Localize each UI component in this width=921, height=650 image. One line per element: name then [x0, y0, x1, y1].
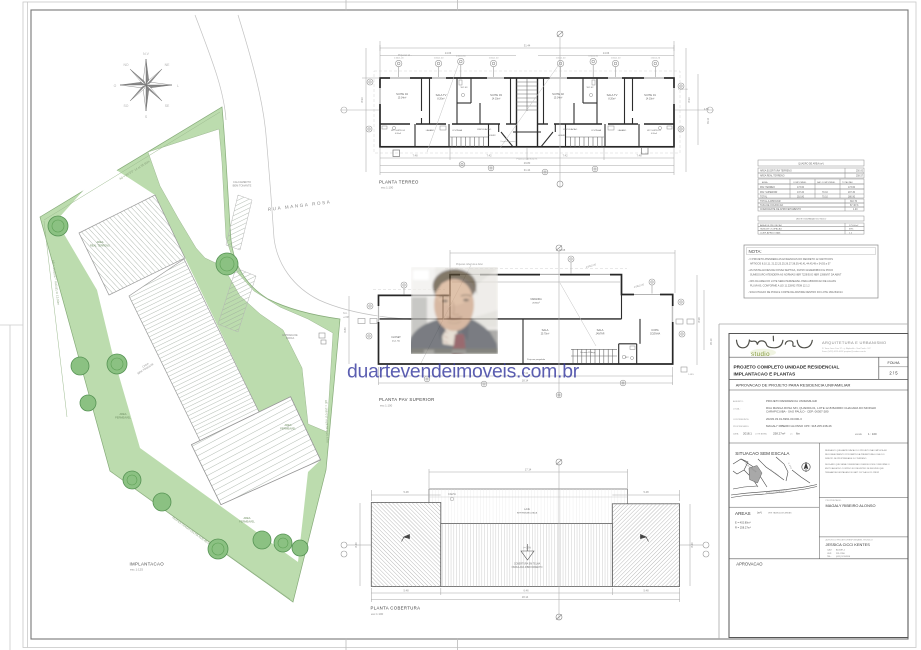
svg-text:CONTRIBUINTE:: CONTRIBUINTE: — [733, 419, 750, 421]
svg-text:28.86m²: 28.86m² — [532, 302, 540, 305]
svg-text:35.10: 35.10 — [709, 338, 713, 345]
svg-text:TEL:: TEL: — [827, 556, 832, 558]
svg-text:studio: studio — [751, 351, 770, 358]
svg-text:FOLHA: FOLHA — [888, 361, 901, 365]
svg-text:8.93: 8.93 — [360, 97, 364, 103]
svg-text:PLANTA TERREO: PLANTA TERREO — [379, 180, 419, 185]
svg-text:TOTAL/PAV.: TOTAL/PAV. — [842, 181, 853, 184]
svg-text:+2.88: +2.88 — [343, 317, 350, 319]
svg-text:69%: 69% — [849, 229, 853, 231]
svg-text:LAVABO: LAVABO — [426, 129, 435, 132]
svg-text:6.46: 6.46 — [523, 589, 529, 593]
svg-text:TOTAL A APROVAR: TOTAL A APROVAR — [760, 200, 781, 203]
svg-text:AREA: AREA — [243, 516, 250, 520]
svg-text:14.06: 14.06 — [603, 51, 610, 55]
svg-text:AUTOR DO PROJETO/RESPONSAVEL T: AUTOR DO PROJETO/RESPONSAVEL TECNICO: — [826, 538, 874, 541]
svg-text:7.48: 7.48 — [412, 154, 418, 158]
svg-text:JANTAR: JANTAR — [596, 333, 605, 336]
svg-text:PROJETO COMPLETO UNIDADE RESID: PROJETO COMPLETO UNIDADE RESIDENCIAL — [734, 365, 840, 370]
svg-text:FORCA: FORCA — [286, 337, 295, 340]
svg-text:AREA: AREA — [284, 423, 291, 427]
svg-text:IMPERMEABILIZADA: IMPERMEABILIZADA — [517, 511, 538, 514]
svg-text:Degrau maximo: Degrau maximo — [501, 140, 517, 143]
svg-text:RECONHECIMENTO POR PARTE DA PR: RECONHECIMENTO POR PARTE DA PREFEITURA L… — [825, 453, 885, 456]
svg-text:ASSUNTO:: ASSUNTO: — [733, 400, 744, 403]
svg-text:IMPLANTACAO E PLANTAS: IMPLANTACAO E PLANTAS — [734, 372, 796, 377]
svg-text:AREA REAL TERRENO: AREA REAL TERRENO — [760, 175, 785, 178]
svg-text:AREA ESCRITURA TERRENO: AREA ESCRITURA TERRENO — [760, 170, 792, 173]
svg-text:esc 1:100: esc 1:100 — [371, 612, 384, 616]
svg-text:0.60x0.60: 0.60x0.60 — [456, 56, 466, 58]
svg-text:COEFICIENTE DE APROVEITAMENTO: COEFICIENTE DE APROVEITAMENTO — [760, 208, 801, 211]
svg-text:SUITE 01: SUITE 01 — [644, 93, 656, 97]
svg-text:137.20: 137.20 — [797, 192, 805, 194]
svg-text:USO E OCUPACAO DO SOLO: USO E OCUPACAO DO SOLO — [796, 218, 827, 221]
svg-text:29.80: 29.80 — [524, 161, 531, 165]
svg-text:6m: 6m — [796, 432, 801, 436]
svg-text:DIREITO DE PROPRIEDADE DO TERR: DIREITO DE PROPRIEDADE DO TERRENO — [825, 457, 867, 460]
svg-text:E = 402.80m²: E = 402.80m² — [735, 521, 751, 525]
svg-text:NOTA:: NOTA: — [749, 249, 762, 254]
svg-text:70.10: 70.10 — [822, 196, 828, 198]
svg-text:LAJE: LAJE — [524, 508, 530, 511]
svg-text:COBERTURA EM TELHA: COBERTURA EM TELHA — [514, 563, 541, 566]
svg-text:5.48: 5.48 — [403, 589, 409, 593]
svg-text:COEF. APROV. MAX: COEF. APROV. MAX — [760, 231, 781, 234]
svg-text:AREAS: AREAS — [735, 511, 751, 516]
svg-text:1.20: 1.20 — [853, 209, 858, 211]
svg-text:PLANTA COBERTURA: PLANTA COBERTURA — [371, 606, 421, 611]
svg-text:PERMEAVEL: PERMEAVEL — [115, 416, 131, 420]
svg-text:(m²): (m²) — [757, 511, 762, 515]
svg-text:DATA:: DATA: — [733, 433, 739, 436]
svg-text:SUMIDOURO ATENDERA AS NORMAS N: SUMIDOURO ATENDERA AS NORMAS NBR 7229/93… — [750, 274, 842, 277]
svg-text:18.14: 18.14 — [522, 595, 529, 599]
svg-text:4.50: 4.50 — [704, 108, 709, 111]
svg-text:VER TABELA DE AREAS: VER TABELA DE AREAS — [768, 512, 792, 515]
svg-text:TOTAL: TOTAL — [760, 195, 768, 198]
svg-text:173.60: 173.60 — [797, 187, 805, 189]
svg-text:AREA: AREA — [96, 240, 103, 244]
svg-text:173.60m²: 173.60m² — [849, 224, 859, 227]
svg-text:2018.1: 2018.1 — [743, 432, 752, 436]
svg-text:N.V: N.V — [143, 52, 149, 56]
svg-text:Escada 19 degr.: Escada 19 degr. — [580, 351, 595, 354]
svg-text:31.44: 31.44 — [524, 168, 531, 172]
svg-text:esc 1:100: esc 1:100 — [380, 404, 393, 408]
svg-text:COMPUTAVEL: COMPUTAVEL — [793, 181, 807, 184]
svg-text:SALA: SALA — [542, 328, 549, 332]
svg-text:SUITE 03: SUITE 03 — [490, 93, 502, 97]
svg-text:SITUACAO SEM ESCALA: SITUACAO SEM ESCALA — [735, 451, 790, 456]
svg-text:COZINHA: COZINHA — [452, 129, 462, 132]
svg-text:PROPRIETARIO:: PROPRIETARIO: — [733, 425, 750, 428]
svg-text:O: O — [114, 84, 117, 88]
svg-text:APROVACAO DE PROJETO PARA RES: APROVACAO DE PROJETO PARA RESIDENCIA UNI… — [736, 382, 851, 387]
svg-text:L: L — [177, 84, 179, 88]
svg-text:PLANTA PAV SUPERIOR: PLANTA PAV SUPERIOR — [379, 397, 435, 402]
svg-text:- O PROJETO ATENDERA AS EXIGEN: - O PROJETO ATENDERA AS EXIGENCIAS DO DE… — [748, 258, 833, 261]
svg-text:S: S — [145, 115, 148, 119]
svg-text:PLUVIAIS, CONFORME A LEI 11.22: PLUVIAIS, CONFORME A LEI 11.228/92 ITEM … — [750, 285, 810, 288]
svg-text:1.60x1.20: 1.60x1.20 — [489, 58, 499, 60]
svg-text:R. IPES: R. IPES — [787, 463, 792, 471]
svg-text:1 : 100: 1 : 100 — [868, 432, 877, 436]
svg-text:esc 1:125: esc 1:125 — [130, 568, 143, 572]
svg-text:APROVACAO: APROVACAO — [736, 562, 763, 567]
svg-text:WC 03: WC 03 — [461, 87, 468, 89]
svg-text:67.46 %: 67.46 % — [850, 205, 858, 207]
svg-text:14.33m²: 14.33m² — [646, 98, 655, 101]
svg-text:ONDULADA FIBROCIMENTO: ONDULADA FIBROCIMENTO — [512, 566, 543, 569]
svg-text:17.14: 17.14 — [525, 468, 532, 472]
svg-text:Projecao cobertura a fazer: Projecao cobertura a fazer — [456, 263, 483, 266]
svg-text:- SOLICITACAO DE PODA E CORTE: - SOLICITACAO DE PODA E CORTE DE ARVORE … — [748, 291, 843, 294]
svg-text:20233.33.01-6991.00.000-3: 20233.33.01-6991.00.000-3 — [766, 417, 802, 421]
svg-text:WC SUITE 01: WC SUITE 01 — [647, 130, 662, 132]
svg-text:25.70m²: 25.70m² — [541, 333, 550, 336]
svg-text:COZINHA: COZINHA — [591, 129, 601, 132]
svg-text:ARQUITETURA E URBANISMO: ARQUITETURA E URBANISMO — [822, 340, 886, 345]
svg-text:QUADRO DE AREA (m²): QUADRO DE AREA (m²) — [798, 162, 824, 165]
svg-text:COPA: COPA — [651, 328, 659, 332]
svg-text:JESSICA CICCI KENTES: JESSICA CICCI KENTES — [826, 542, 871, 547]
svg-text:15.34m²: 15.34m² — [398, 97, 407, 100]
svg-text:R. Tome Joao Cruz 37 - cj. Alp: R. Tome Joao Cruz 37 - cj. Alphaville - … — [822, 347, 871, 350]
svg-text:231-7890: 231-7890 — [836, 553, 846, 555]
svg-text:un:: un: — [790, 434, 793, 436]
svg-text:NO: NO — [123, 63, 128, 67]
svg-text:A51087-1: A51087-1 — [836, 549, 846, 552]
svg-text:4.20m²: 4.20m² — [395, 132, 402, 135]
svg-text:LOTE AREA:: LOTE AREA: — [755, 433, 768, 436]
svg-text:310.70: 310.70 — [850, 201, 858, 203]
svg-text:6.80: 6.80 — [343, 327, 347, 333]
svg-text:11.08: 11.08 — [559, 248, 566, 252]
svg-text:TENHAM SE DESTACADO NO ART. 24: TENHAM SE DESTACADO NO ART. 247 DA LEI 1… — [825, 471, 880, 474]
svg-text:WC 02: WC 02 — [587, 87, 594, 89]
svg-text:173.60: 173.60 — [848, 187, 856, 189]
svg-text:TAXA DE OCUPACAO: TAXA DE OCUPACAO — [760, 228, 782, 231]
svg-text:esc 1:100: esc 1:100 — [381, 186, 394, 190]
svg-text:207.30: 207.30 — [848, 192, 856, 194]
svg-text:A.SERV: A.SERV — [558, 134, 566, 137]
svg-text:PAV. TERREO: PAV. TERREO — [760, 186, 775, 189]
svg-text:duartevendeimoveis.com.br: duartevendeimoveis.com.br — [347, 361, 580, 383]
svg-text:31.44: 31.44 — [524, 44, 531, 48]
svg-text:REAL TERRENO: REAL TERRENO — [90, 244, 110, 248]
svg-text:CALHA: CALHA — [448, 493, 456, 496]
svg-text:ARTIGOS 8,10,11, 21,22,23,25,2: ARTIGOS 8,10,11, 21,22,23,25,26,27,38,39… — [750, 263, 831, 266]
svg-text:IMPLANTACAO: IMPLANTACAO — [130, 562, 165, 567]
svg-text:TAXA DE OCUPACAO: TAXA DE OCUPACAO — [760, 204, 783, 207]
svg-text:PROJETO RESIDENCIA UNIFAMILIAR: PROJETO RESIDENCIA UNIFAMILIAR — [766, 399, 817, 403]
svg-text:R = 258.27m²: R = 258.27m² — [735, 526, 751, 530]
svg-text:i = 10%: i = 10% — [523, 548, 531, 550]
svg-text:escala: escala — [855, 434, 862, 436]
svg-text:SE: SE — [165, 104, 170, 108]
svg-text:CARAPICUIBA - SAO PAULO - CEP:: CARAPICUIBA - SAO PAULO - CEP: 06307-280 — [766, 409, 829, 413]
svg-text:MUITO ALEM DO CONTIDO NO REGIS: MUITO ALEM DO CONTIDO NO REGISTRO DE IMO… — [825, 467, 884, 470]
svg-text:MAGALY RIBEIRO ALONSO: MAGALY RIBEIRO ALONSO — [826, 503, 876, 508]
svg-text:258.57: 258.57 — [856, 176, 864, 178]
svg-text:PERMEAVEL: PERMEAVEL — [239, 520, 255, 524]
svg-text:SUITE 04: SUITE 04 — [396, 92, 408, 96]
svg-text:2 / 5: 2 / 5 — [889, 371, 898, 376]
svg-text:WC: WC — [625, 357, 629, 359]
svg-text:SUITE 02: SUITE 02 — [552, 92, 564, 96]
svg-text:BEM TONANTE: BEM TONANTE — [233, 184, 252, 188]
svg-text:CAU:: CAU: — [827, 549, 832, 552]
svg-text:1.60x1.20: 1.60x1.20 — [556, 58, 566, 60]
svg-text:RESSALVO QUE A APROVACAO D: RESSALVO QUE A APROVACAO DO PROJETO NAO … — [825, 449, 887, 452]
svg-text:NAO COMPUTAVEL: NAO COMPUTAVEL — [817, 181, 836, 184]
svg-text:258.27m²: 258.27m² — [773, 432, 785, 436]
svg-text:A.SERV: A.SERV — [488, 134, 496, 137]
svg-text:8.98: 8.98 — [697, 317, 701, 323]
svg-text:SALA TV: SALA TV — [436, 93, 447, 97]
svg-text:Fone: (0411) 4191-0092 projeto: Fone: (0411) 4191-0092 projetos@umbau.co… — [822, 350, 866, 353]
svg-text:Projecao cobertura inf.: Projecao cobertura inf. — [517, 158, 538, 161]
svg-text:CIRCULACAO: CIRCULACAO — [477, 128, 492, 131]
svg-text:CLOSET: CLOSET — [391, 336, 401, 339]
svg-text:5.48: 5.48 — [403, 490, 409, 494]
svg-text:15.34m²: 15.34m² — [554, 97, 563, 100]
svg-text:AREA DE PROJECAO: AREA DE PROJECAO — [760, 224, 782, 227]
svg-text:SO: SO — [124, 104, 129, 108]
svg-text:70.10: 70.10 — [822, 192, 828, 194]
svg-text:- 20% DA AREA DO LOTE SERA PER: - 20% DA AREA DO LOTE SERA PERMEAVEL PAR… — [748, 280, 836, 283]
svg-text:35.10: 35.10 — [707, 117, 710, 124]
svg-text:4.08x2.40: 4.08x2.40 — [633, 283, 645, 289]
svg-text:Projecao tel...: Projecao tel... — [398, 54, 412, 57]
svg-text:SALA TV: SALA TV — [607, 93, 618, 97]
svg-text:ESTRADA DO MOINHO: ESTRADA DO MOINHO — [766, 490, 787, 494]
svg-text:VARANDA: VARANDA — [530, 298, 542, 301]
svg-text:MAGALY RIBEIRO ALONSO CPF: 31: MAGALY RIBEIRO ALONSO CPF: 318.205.238-4… — [766, 424, 832, 428]
svg-text:5.48: 5.48 — [643, 589, 649, 593]
svg-text:LOCAL:: LOCAL: — [733, 408, 741, 411]
svg-text:310.80: 310.80 — [797, 196, 805, 198]
svg-text:1.60x1.20: 1.60x1.20 — [678, 89, 688, 91]
svg-text:14.33m²: 14.33m² — [492, 98, 501, 101]
svg-text:SALA: SALA — [597, 328, 604, 332]
svg-text:LAVABO: LAVABO — [618, 129, 627, 132]
svg-text:PROPRIETARIO:: PROPRIETARIO: — [826, 499, 843, 502]
svg-text:RUA MANGA ROSA: RUA MANGA ROSA — [268, 199, 332, 212]
svg-text:380.90: 380.90 — [848, 196, 856, 198]
svg-text:(h=1.70): (h=1.70) — [392, 341, 400, 343]
svg-text:CALCAMENTO: CALCAMENTO — [233, 180, 251, 184]
svg-text:8.93: 8.93 — [687, 97, 691, 103]
svg-text:1.60x1.20: 1.60x1.20 — [394, 58, 404, 60]
svg-text:7.42: 7.42 — [562, 154, 568, 158]
svg-text:PERMEAVEL: PERMEAVEL — [280, 427, 296, 431]
svg-text:1.60x1.20: 1.60x1.20 — [434, 58, 444, 60]
svg-text:WC SUITE 04: WC SUITE 04 — [391, 130, 406, 132]
svg-text:1.68%: 1.68% — [688, 374, 694, 376]
svg-text:CIRCULACAO: CIRCULACAO — [563, 128, 578, 131]
svg-text:1.60x1.20: 1.60x1.20 — [611, 58, 621, 60]
svg-text:N.A.: N.A. — [343, 312, 348, 315]
svg-text:COZINHA: COZINHA — [650, 333, 661, 336]
svg-text:4.60x2.40: 4.60x2.40 — [585, 263, 597, 269]
svg-text:(011) 974-8956: (011) 974-8956 — [836, 556, 851, 558]
svg-text:CEP:: CEP: — [827, 553, 832, 555]
svg-text:0.60x0.60: 0.60x0.60 — [588, 56, 598, 58]
svg-text:8.20m²: 8.20m² — [608, 98, 615, 101]
svg-text:- AS INSTALACOES DE FOSSA SEPT: - AS INSTALACOES DE FOSSA SEPTICA, FILTR… — [748, 269, 833, 272]
svg-text:PAV. SUPERIOR: PAV. SUPERIOR — [760, 191, 778, 194]
svg-text:1.60x1.20: 1.60x1.20 — [650, 58, 660, 60]
svg-text:14.06: 14.06 — [445, 51, 452, 55]
svg-text:AREA: AREA — [119, 412, 126, 416]
svg-text:R. M. ROSA: R. M. ROSA — [769, 468, 780, 477]
svg-text:NE: NE — [165, 63, 170, 67]
svg-text:250.00: 250.00 — [856, 171, 864, 173]
svg-text:4.20m²: 4.20m² — [651, 132, 658, 135]
svg-text:7.42: 7.42 — [486, 154, 492, 158]
svg-text:8.20m²: 8.20m² — [437, 98, 444, 101]
svg-text:5.48: 5.48 — [643, 490, 649, 494]
svg-text:AREA: AREA — [762, 181, 768, 184]
svg-text:DECLARO QUE SERA COMUNICADO DE: DECLARO QUE SERA COMUNICADO DEMOLICOES C… — [825, 463, 890, 466]
